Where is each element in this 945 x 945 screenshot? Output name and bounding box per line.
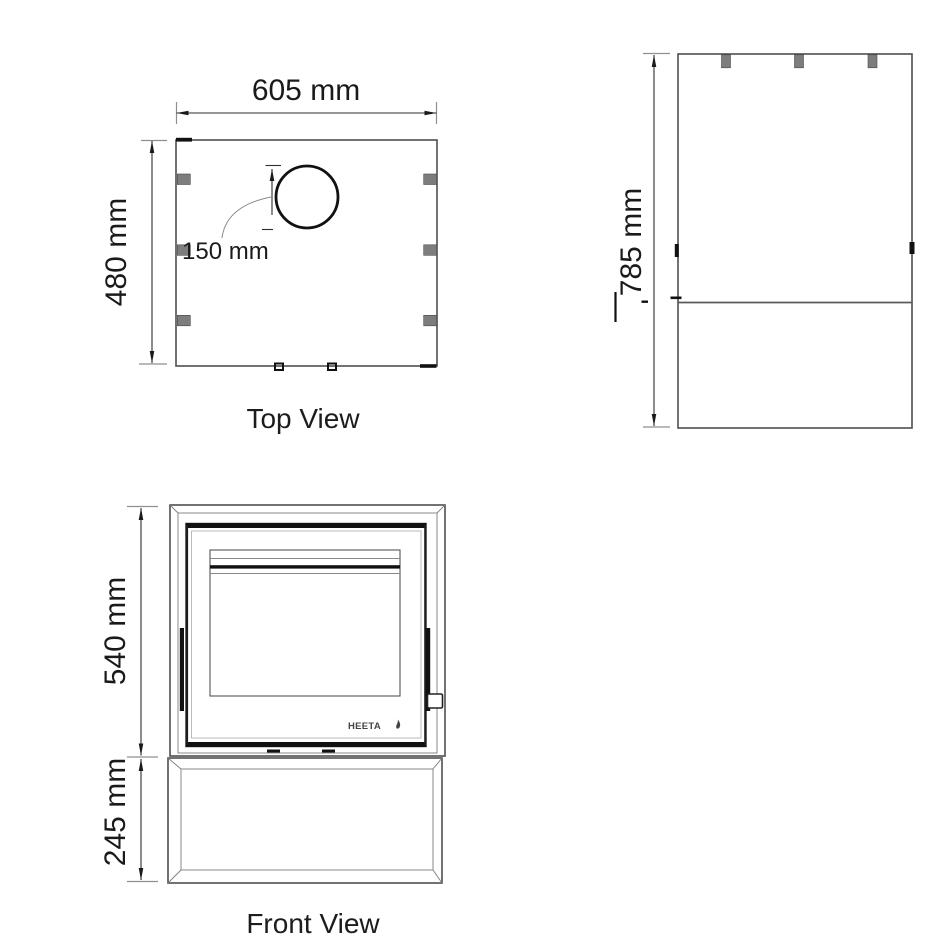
side-view-height-dim-text: 785 mm: [615, 188, 648, 296]
stand-outer: [168, 758, 442, 883]
side-view-height-dimension: 785 mm: [615, 54, 670, 428]
top-view-width-dim-text: 605 mm: [252, 74, 360, 107]
door-bottom-bar: [186, 742, 427, 747]
edge-mark: [642, 301, 649, 303]
tab: [795, 55, 804, 68]
door-glass: [210, 550, 400, 696]
base-mark: [322, 750, 335, 753]
top-view-label: Top View: [246, 403, 360, 434]
log-store-stand: [168, 758, 442, 883]
edge-mark: [671, 297, 682, 300]
side-view-body: [678, 54, 912, 428]
stand-height-dim-text: 245 mm: [99, 758, 132, 866]
base-mark: [267, 750, 280, 753]
tab: [177, 174, 190, 185]
corner-mark: [176, 138, 192, 142]
tab: [424, 245, 437, 256]
top-view-width-dimension: 605 mm: [177, 74, 437, 124]
tab: [868, 55, 877, 68]
tab: [177, 315, 190, 326]
drawing-svg: 605 mm 480 mm: [0, 0, 945, 945]
top-view: 605 mm 480 mm: [100, 74, 437, 434]
front-view-label: Front View: [246, 908, 380, 939]
tab: [424, 174, 437, 185]
stove-dimension-drawing: 605 mm 480 mm: [0, 0, 945, 945]
airwash-vent-bar: [210, 565, 400, 568]
front-view: HEETA 540 mm 245 mm F: [99, 505, 445, 939]
front-view-stand-dimension: 245 mm: [99, 758, 158, 882]
top-view-depth-dimension: 480 mm: [100, 141, 167, 365]
corner-mark: [420, 364, 437, 368]
front-view-firebox-dimension: 540 mm: [99, 507, 158, 758]
door-top-bar: [186, 523, 427, 528]
door-handle: [428, 694, 443, 708]
edge-mark: [910, 242, 915, 254]
stove-door: HEETA: [180, 523, 443, 747]
flue-outlet-circle: [276, 166, 338, 228]
glass-pane: [210, 550, 400, 696]
firebox-height-dim-text: 540 mm: [99, 577, 132, 685]
flue-offset-dim-text: 150 mm: [182, 238, 269, 265]
side-view: 785 mm: [615, 54, 915, 429]
brand-logo-text: HEETA: [348, 721, 381, 732]
tab: [722, 55, 731, 68]
top-view-depth-dim-text: 480 mm: [100, 198, 133, 306]
left-hinge-bar: [180, 628, 184, 711]
edge-mark: [675, 244, 679, 257]
tab: [424, 315, 437, 326]
